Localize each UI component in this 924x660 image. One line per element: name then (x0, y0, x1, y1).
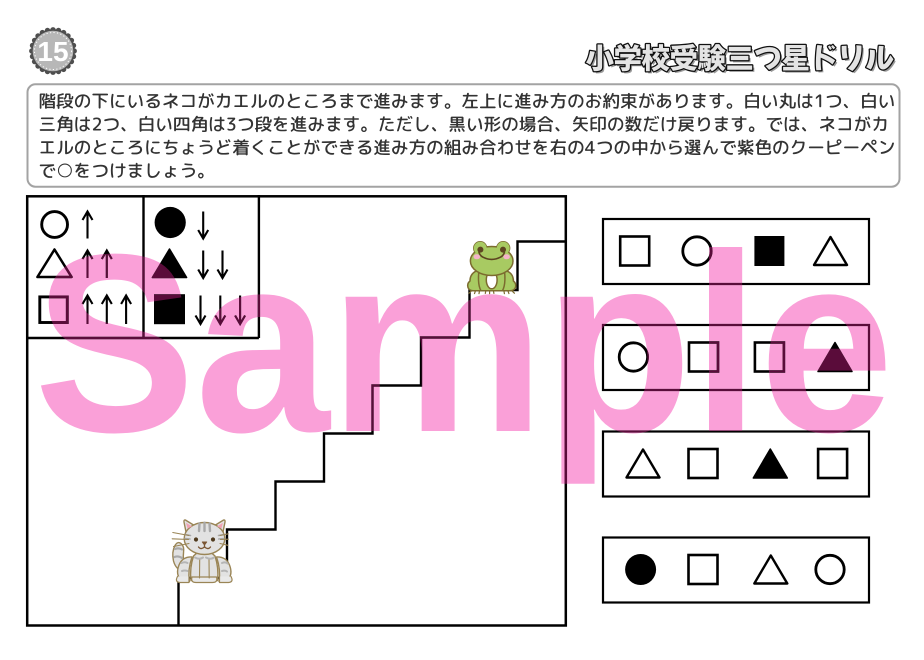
svg-text:15: 15 (37, 36, 68, 67)
